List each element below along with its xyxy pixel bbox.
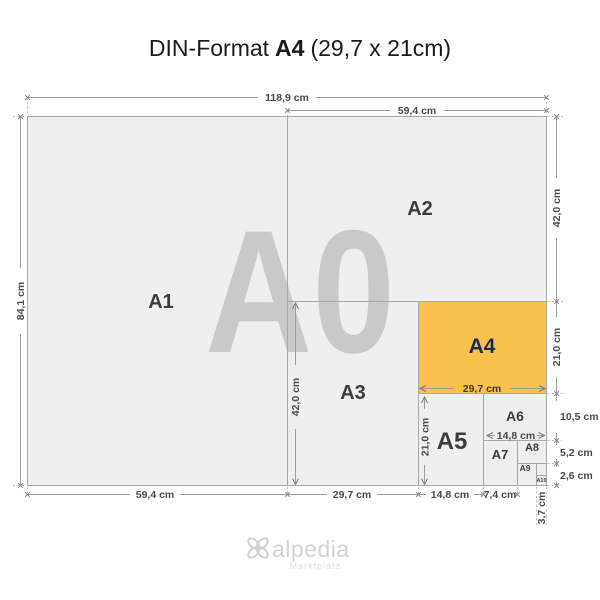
dim-a1-width: 59,4 cm [136,489,175,501]
title-format-size: (29,7 x 21cm) [310,35,451,61]
dim-a2-height: 42,0 cm [551,189,563,228]
label-a9: A9 [520,463,531,473]
dim-a9-width: 3,7 cm [536,492,548,525]
dim-inner-a4-width: 29,7 cm [463,383,502,395]
a0-watermark: A0 [205,195,395,390]
dim-a0-width: 118,9 cm [265,92,309,104]
logo-name: alpedia [272,536,350,562]
label-a10: A10 [536,478,546,484]
label-a8: A8 [525,442,539,454]
label-a3: A3 [340,382,366,404]
label-a5: A5 [437,428,468,455]
label-a1: A1 [148,291,174,313]
page-title: DIN-FormatA4(29,7 x 21cm) [149,35,451,61]
dim-a5-width: 14,8 cm [431,489,470,501]
din-format-diagram: DIN-FormatA4(29,7 x 21cm) A0 A1 A2 A3 A4… [0,0,600,600]
dim-a7-width: 7,4 cm [484,489,517,501]
logo-tagline: Marktplatz [289,561,341,571]
dim-a6-height: 10,5 cm [560,411,599,423]
label-a7: A7 [492,447,509,462]
title-prefix: DIN-Format [149,35,270,61]
dim-a3-width: 29,7 cm [333,489,372,501]
alpedia-logo-icon [246,536,269,559]
dim-a10-height: 2,6 cm [560,470,593,482]
label-a6: A6 [506,408,524,424]
title-format-name: A4 [275,35,305,61]
dim-a8-height: 5,2 cm [560,447,593,459]
dim-a4-height: 21,0 cm [551,328,563,367]
label-a2: A2 [407,198,433,220]
diagram-canvas: DIN-FormatA4(29,7 x 21cm) A0 A1 A2 A3 A4… [0,0,600,600]
dim-inner-a5-height: 21,0 cm [420,418,432,457]
label-a4: A4 [469,335,496,358]
dim-a0-height: 84,1 cm [15,282,27,321]
footer-logo: alpedia Marktplatz [246,536,349,571]
dim-inner-a3-height: 42,0 cm [290,378,302,417]
dim-a2-width: 59,4 cm [398,105,437,117]
dim-inner-a6-width: 14,8 cm [497,430,536,442]
